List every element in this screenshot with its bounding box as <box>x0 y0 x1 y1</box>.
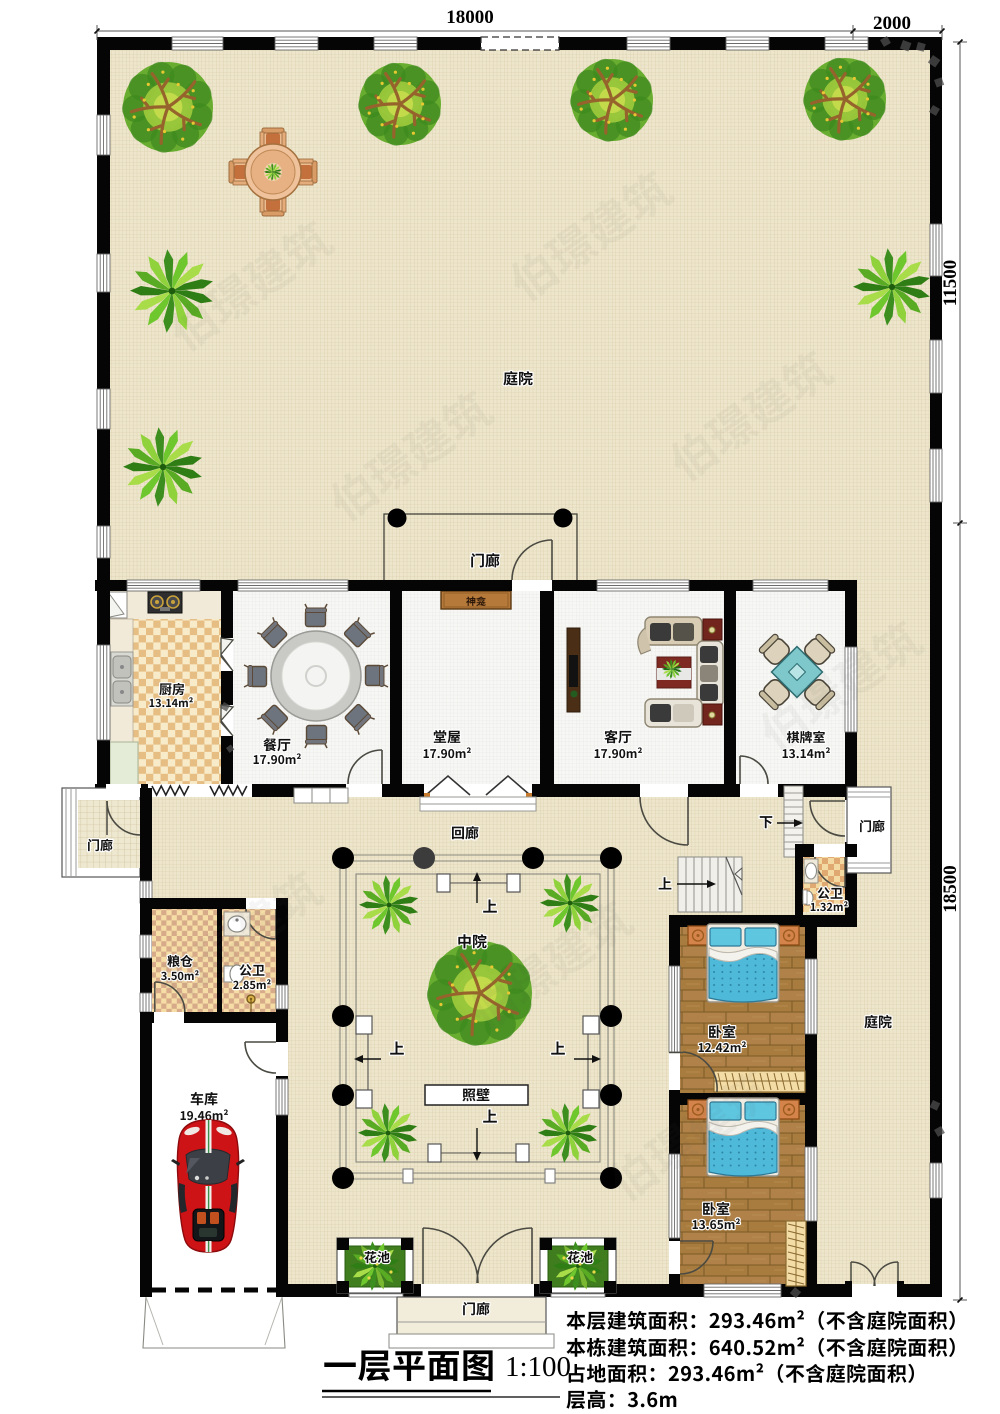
svg-text:18500: 18500 <box>940 865 961 913</box>
svg-text:1:100: 1:100 <box>505 1351 571 1383</box>
svg-text:11500: 11500 <box>940 260 961 306</box>
svg-text:2000: 2000 <box>873 13 911 34</box>
svg-text:18000: 18000 <box>446 7 494 28</box>
